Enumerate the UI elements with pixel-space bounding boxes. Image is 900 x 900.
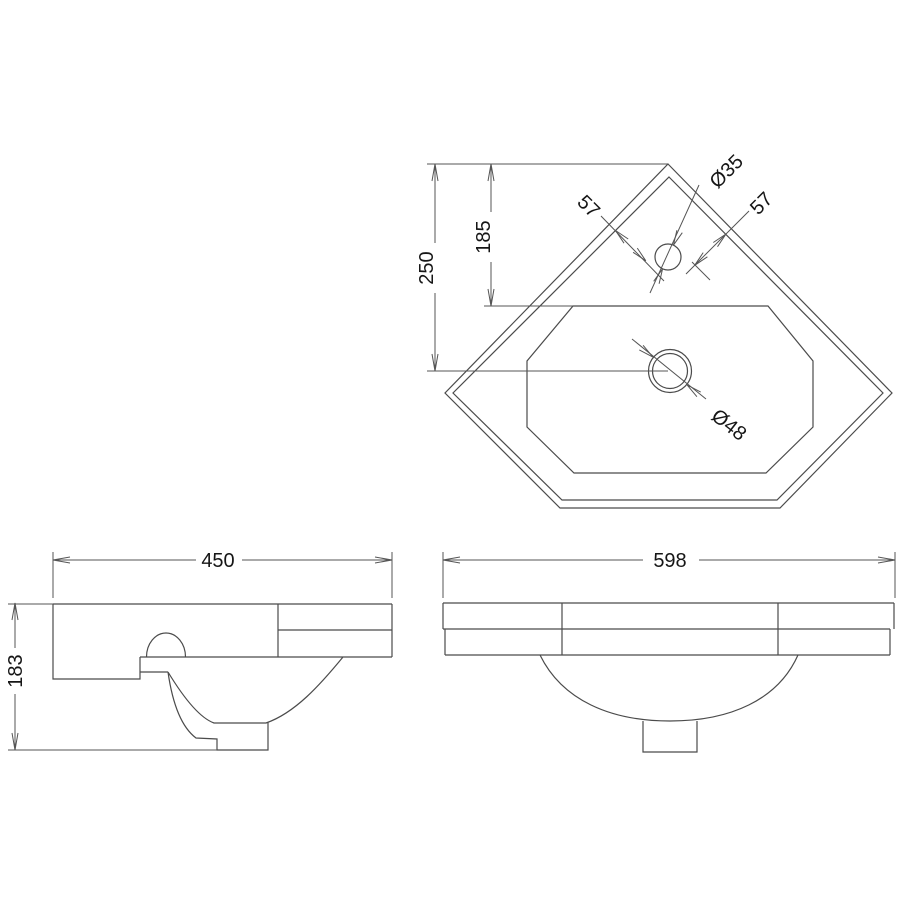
side-view: 450 183 bbox=[5, 550, 392, 750]
dim-tap-offset-right-label: 57 bbox=[746, 188, 777, 219]
side-outline bbox=[53, 604, 392, 750]
dim-overall-height-label: 250 bbox=[416, 251, 438, 284]
front-outline bbox=[443, 603, 894, 752]
side-arrowheads bbox=[12, 557, 392, 750]
tap-hole-circle bbox=[655, 244, 681, 270]
technical-drawing-page: 250 185 57 57 Ø35 Ø48 450 183 598 bbox=[0, 0, 900, 900]
plan-bowl-outline bbox=[527, 306, 813, 473]
plan-inner-wall-outline bbox=[453, 177, 883, 500]
plan-view: 250 185 57 57 Ø35 Ø48 bbox=[416, 151, 892, 508]
dim-width-label: 598 bbox=[653, 550, 686, 572]
basin-technical-drawing: 250 185 57 57 Ø35 Ø48 450 183 598 bbox=[0, 0, 900, 900]
dim-tap-offset-left-label: 57 bbox=[573, 191, 604, 222]
dim-tap-hole-diameter-label: Ø35 bbox=[706, 151, 748, 193]
dim-depth-label: 450 bbox=[201, 550, 234, 572]
front-view: 598 bbox=[443, 550, 895, 752]
dim-height-label: 183 bbox=[5, 654, 27, 687]
side-dimension-lines bbox=[8, 552, 392, 750]
plan-outer-outline bbox=[445, 164, 892, 508]
dim-tap-setback-label: 185 bbox=[473, 220, 495, 253]
dim-waste-diameter-label: Ø48 bbox=[707, 405, 750, 446]
